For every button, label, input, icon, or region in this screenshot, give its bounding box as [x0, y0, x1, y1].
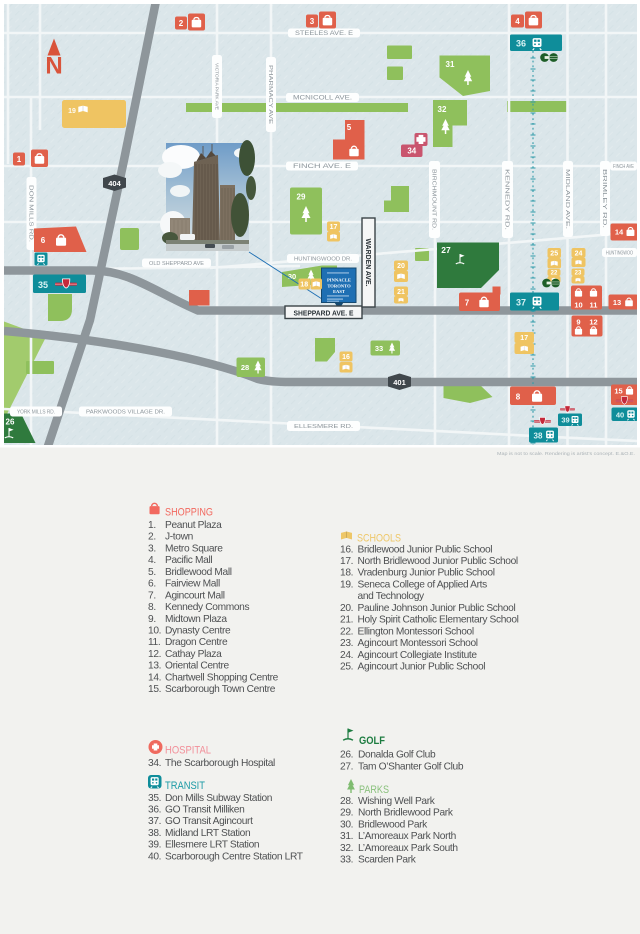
svg-text:39.: 39. — [148, 840, 161, 851]
svg-text:26: 26 — [6, 418, 15, 427]
svg-text:PINNACLE: PINNACLE — [327, 278, 351, 283]
svg-text:ELLESMERE RD.: ELLESMERE RD. — [294, 424, 354, 430]
svg-text:HOSPITAL: HOSPITAL — [165, 745, 211, 757]
svg-text:Metro Square: Metro Square — [165, 543, 223, 554]
svg-text:12.: 12. — [148, 649, 161, 660]
svg-text:2.: 2. — [148, 532, 156, 543]
svg-text:5.: 5. — [148, 567, 156, 578]
svg-text:4: 4 — [515, 17, 520, 26]
svg-text:27: 27 — [441, 245, 451, 255]
svg-text:17: 17 — [520, 335, 528, 342]
svg-text:3.: 3. — [148, 543, 156, 554]
svg-text:24: 24 — [575, 250, 583, 257]
svg-text:20: 20 — [397, 263, 405, 270]
svg-text:PARKS: PARKS — [359, 784, 389, 796]
svg-text:26.: 26. — [340, 750, 353, 761]
svg-text:36.: 36. — [148, 805, 161, 816]
svg-text:39: 39 — [561, 416, 569, 425]
svg-text:16.: 16. — [340, 544, 353, 555]
svg-text:Bridlewood Park: Bridlewood Park — [358, 819, 428, 830]
svg-text:OLD SHEPPARD AVE: OLD SHEPPARD AVE — [149, 261, 204, 267]
svg-text:DON MILLS RD.: DON MILLS RD. — [28, 185, 34, 242]
svg-text:8: 8 — [516, 393, 521, 402]
svg-text:38: 38 — [534, 432, 543, 441]
svg-text:WARDEN AVE.: WARDEN AVE. — [364, 239, 373, 287]
svg-text:HUNTINGWOO: HUNTINGWOO — [606, 250, 633, 256]
svg-text:7.: 7. — [148, 590, 156, 601]
svg-text:29: 29 — [297, 193, 306, 202]
svg-text:34.: 34. — [148, 758, 161, 769]
svg-text:9.: 9. — [148, 614, 156, 625]
svg-text:33.: 33. — [340, 855, 353, 866]
svg-text:Scarborough Centre Station LRT: Scarborough Centre Station LRT — [165, 851, 303, 862]
svg-text:VICTORIA PARK AVE: VICTORIA PARK AVE — [214, 63, 219, 110]
svg-text:9: 9 — [576, 318, 580, 327]
svg-text:HUNTINGWOOD DR.: HUNTINGWOOD DR. — [294, 256, 352, 262]
svg-text:28.: 28. — [340, 796, 353, 807]
svg-text:21.: 21. — [340, 615, 353, 626]
svg-text:TRANSIT: TRANSIT — [165, 780, 205, 792]
svg-text:7: 7 — [465, 299, 470, 308]
svg-text:19: 19 — [68, 108, 76, 115]
svg-text:10: 10 — [574, 301, 582, 310]
svg-text:L’Amoreaux Park North: L’Amoreaux Park North — [358, 831, 456, 842]
svg-text:KENNEDY RD.: KENNEDY RD. — [504, 169, 510, 230]
svg-text:Oriental Centre: Oriental Centre — [165, 661, 230, 672]
svg-text:MCNICOLL AVE.: MCNICOLL AVE. — [293, 96, 352, 102]
svg-text:Scarborough Town Centre: Scarborough Town Centre — [165, 684, 276, 695]
svg-text:2: 2 — [179, 19, 184, 28]
svg-text:6: 6 — [41, 236, 46, 245]
svg-text:Holy Spirit Catholic Elementar: Holy Spirit Catholic Elementary School — [358, 615, 519, 626]
svg-text:Pacific Mall: Pacific Mall — [165, 555, 212, 566]
svg-text:17.: 17. — [340, 556, 353, 567]
svg-text:6.: 6. — [148, 579, 156, 590]
svg-text:31.: 31. — [340, 831, 353, 842]
svg-text:36: 36 — [516, 39, 526, 49]
svg-text:Ellesmere LRT Station: Ellesmere LRT Station — [165, 840, 259, 851]
svg-text:GO Transit Milliken: GO Transit Milliken — [165, 805, 244, 816]
svg-text:11.: 11. — [148, 637, 160, 648]
svg-text:37.: 37. — [148, 816, 161, 827]
svg-text:GO Transit Agincourt: GO Transit Agincourt — [165, 816, 253, 827]
svg-text:37: 37 — [516, 298, 526, 308]
svg-text:GOLF: GOLF — [359, 735, 385, 747]
svg-text:40.: 40. — [148, 851, 161, 862]
svg-text:11: 11 — [590, 301, 598, 310]
svg-text:Donalda Golf Club: Donalda Golf Club — [358, 750, 436, 761]
svg-text:12: 12 — [589, 318, 597, 327]
svg-text:35.: 35. — [148, 793, 161, 804]
svg-text:32: 32 — [438, 105, 447, 114]
svg-text:TORONTO: TORONTO — [327, 283, 351, 288]
svg-text:Agincourt Montessori School: Agincourt Montessori School — [358, 638, 478, 649]
svg-text:Cathay Plaza: Cathay Plaza — [165, 649, 222, 660]
svg-text:27.: 27. — [340, 761, 353, 772]
svg-text:Scarden Park: Scarden Park — [358, 855, 417, 866]
svg-text:25.: 25. — [340, 662, 353, 673]
svg-text:18.: 18. — [340, 568, 353, 579]
svg-text:Bridlewood Mall: Bridlewood Mall — [165, 567, 232, 578]
svg-text:5: 5 — [347, 123, 352, 132]
svg-text:North Bridlewood Junior Public: North Bridlewood Junior Public School — [358, 556, 518, 567]
svg-text:8.: 8. — [148, 602, 156, 613]
svg-text:FINCH AVE: FINCH AVE — [613, 164, 634, 170]
svg-text:Midland LRT Station: Midland LRT Station — [165, 828, 250, 839]
svg-text:1.: 1. — [148, 520, 156, 531]
svg-text:SHEPPARD AVE. E: SHEPPARD AVE. E — [294, 308, 354, 317]
svg-text:24.: 24. — [340, 650, 353, 661]
svg-text:PHARMACY AVE: PHARMACY AVE — [267, 65, 273, 125]
svg-text:BIRCHMOUNT RD.: BIRCHMOUNT RD. — [431, 169, 437, 230]
svg-text:BRIMLEY RD.: BRIMLEY RD. — [601, 169, 607, 228]
svg-text:Agincourt Junior Public School: Agincourt Junior Public School — [358, 662, 486, 673]
svg-text:15.: 15. — [148, 684, 161, 695]
svg-text:Vradenburg Junior Public Schoo: Vradenburg Junior Public School — [358, 568, 495, 579]
svg-text:32.: 32. — [340, 843, 353, 854]
svg-text:Dynasty Centre: Dynasty Centre — [165, 625, 231, 636]
svg-text:The Scarborough Hospital: The Scarborough Hospital — [165, 758, 275, 769]
svg-text:22.: 22. — [340, 626, 353, 637]
svg-text:Pauline Johnson Junior Public: Pauline Johnson Junior Public School — [358, 603, 516, 614]
svg-text:North Bridlewood Park: North Bridlewood Park — [358, 808, 454, 819]
svg-text:18: 18 — [300, 282, 308, 289]
svg-text:EAST: EAST — [333, 289, 345, 294]
svg-text:Agincourt Collegiate Institute: Agincourt Collegiate Institute — [358, 650, 478, 661]
svg-text:401: 401 — [393, 378, 406, 387]
svg-text:SHOPPING: SHOPPING — [165, 507, 213, 519]
svg-text:25: 25 — [550, 251, 558, 258]
svg-text:28: 28 — [241, 363, 249, 372]
svg-text:38.: 38. — [148, 828, 161, 839]
svg-text:3: 3 — [310, 17, 315, 26]
svg-text:19.: 19. — [340, 579, 353, 590]
svg-text:23: 23 — [575, 270, 582, 276]
svg-text:30.: 30. — [340, 819, 353, 830]
svg-text:STEELES AVE. E: STEELES AVE. E — [295, 31, 353, 37]
svg-text:Midtown Plaza: Midtown Plaza — [165, 614, 227, 625]
svg-text:21: 21 — [397, 289, 405, 296]
svg-text:Kennedy Commons: Kennedy Commons — [165, 602, 249, 613]
svg-text:33: 33 — [375, 344, 383, 353]
svg-text:404: 404 — [108, 179, 121, 188]
svg-text:23.: 23. — [340, 638, 353, 649]
svg-text:MIDLAND AVE.: MIDLAND AVE. — [564, 169, 570, 229]
svg-text:22: 22 — [551, 271, 558, 277]
svg-text:14: 14 — [615, 228, 624, 237]
svg-text:14.: 14. — [148, 672, 161, 683]
svg-text:20.: 20. — [340, 603, 353, 614]
svg-text:29.: 29. — [340, 808, 353, 819]
svg-text:35: 35 — [38, 280, 48, 290]
svg-text:and Technology: and Technology — [358, 591, 426, 602]
svg-text:15: 15 — [614, 387, 622, 396]
svg-text:J-town: J-town — [165, 532, 193, 543]
svg-text:Tam O’Shanter Golf Club: Tam O’Shanter Golf Club — [358, 761, 464, 772]
svg-text:40: 40 — [616, 411, 624, 420]
svg-text:N: N — [45, 53, 62, 80]
svg-text:SCHOOLS: SCHOOLS — [357, 533, 401, 545]
svg-text:Bridlewood Junior Public Schoo: Bridlewood Junior Public School — [358, 544, 493, 555]
svg-text:Peanut Plaza: Peanut Plaza — [165, 520, 222, 531]
svg-text:10.: 10. — [148, 625, 161, 636]
svg-text:PARKWOODS VILLAGE DR.: PARKWOODS VILLAGE DR. — [86, 409, 165, 415]
svg-text:13: 13 — [613, 298, 621, 307]
svg-text:Chartwell Shopping Centre: Chartwell Shopping Centre — [165, 672, 279, 683]
svg-text:Fairview Mall: Fairview Mall — [165, 579, 220, 590]
svg-text:YORK MILLS RD.: YORK MILLS RD. — [17, 409, 55, 415]
svg-text:Map is not to scale. Renderi: Map is not to scale. Rendering is artist… — [497, 451, 635, 457]
svg-text:16: 16 — [342, 354, 350, 361]
svg-text:Wishing Well Park: Wishing Well Park — [358, 796, 436, 807]
svg-text:13.: 13. — [148, 661, 161, 672]
svg-text:1: 1 — [17, 155, 22, 164]
svg-text:L’Amoreaux Park South: L’Amoreaux Park South — [358, 843, 458, 854]
svg-text:4.: 4. — [148, 555, 156, 566]
svg-text:Don Mills Subway Station: Don Mills Subway Station — [165, 793, 272, 804]
svg-text:Ellington Montessori School: Ellington Montessori School — [358, 626, 474, 637]
svg-text:Seneca College of Applied Arts: Seneca College of Applied Arts — [358, 579, 488, 590]
svg-text:FINCH AVE. E: FINCH AVE. E — [293, 164, 351, 170]
svg-text:31: 31 — [446, 60, 455, 69]
svg-text:Dragon Centre: Dragon Centre — [165, 637, 228, 648]
svg-text:17: 17 — [330, 224, 338, 231]
svg-text:34: 34 — [407, 147, 416, 156]
svg-text:Agincourt Mall: Agincourt Mall — [165, 590, 225, 601]
